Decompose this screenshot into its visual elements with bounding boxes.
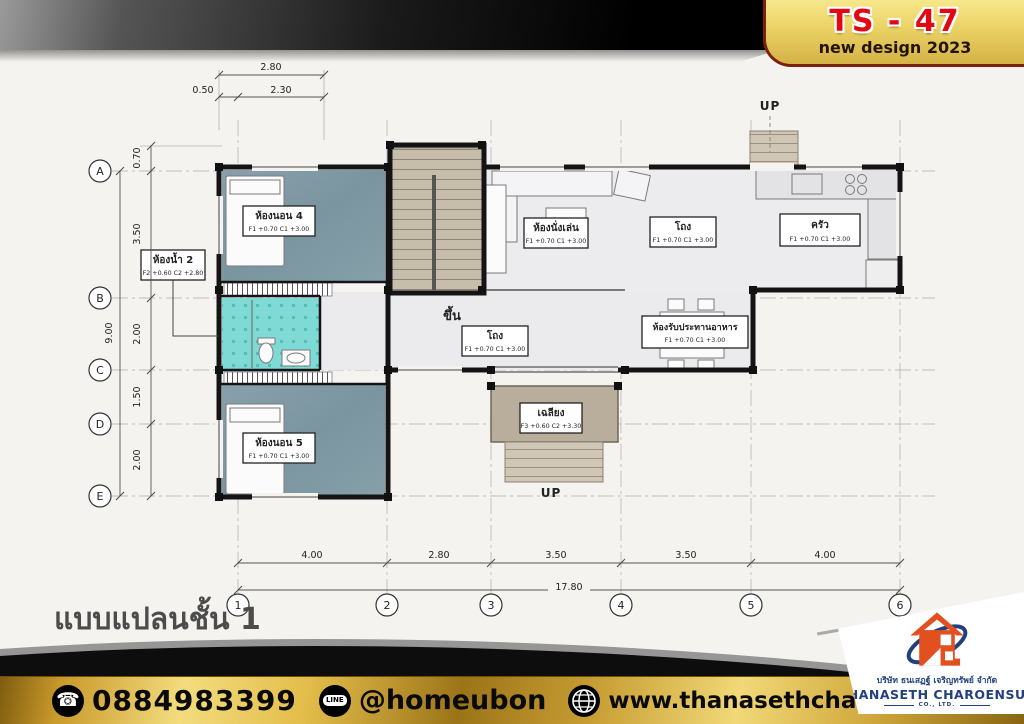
svg-text:F1 +0.70 C1 +3.00: F1 +0.70 C1 +3.00 xyxy=(653,237,714,244)
room-label-kitchen: ครัว F1 +0.70 C1 +3.00 xyxy=(780,214,860,246)
svg-text:ครัว: ครัว xyxy=(811,219,829,231)
dim-left-200b: 2.00 xyxy=(132,449,143,470)
svg-text:F2 +0.60 C2 +2.80: F2 +0.60 C2 +2.80 xyxy=(143,270,204,277)
svg-text:ห้องน้ำ 2: ห้องน้ำ 2 xyxy=(153,252,193,266)
room-label-hall-center: โถง F1 +0.70 C1 +3.00 xyxy=(462,326,528,356)
phone-contact: ☎ 0884983399 xyxy=(52,684,297,717)
svg-text:F3 +0.60 C2 +3.30: F3 +0.60 C2 +3.30 xyxy=(521,423,582,430)
company-name-thai: บริษัท ธนเสฏฐ์ เจริญทรัพย์ จำกัด xyxy=(877,673,997,687)
phone-icon: ☎ xyxy=(52,685,84,717)
top-banner-shadow xyxy=(0,50,778,62)
svg-text:F1 +0.70 C1 +3.00: F1 +0.70 C1 +3.00 xyxy=(465,346,526,353)
svg-text:ห้องนอน 5: ห้องนอน 5 xyxy=(255,437,303,449)
svg-text:ห้องนั่งเล่น: ห้องนั่งเล่น xyxy=(533,220,579,234)
up-label-top: UP xyxy=(760,99,781,113)
room-label-bath2: ห้องน้ำ 2 F2 +0.60 C2 +2.80 xyxy=(141,250,219,336)
svg-text:F1 +0.70 C1 +3.00: F1 +0.70 C1 +3.00 xyxy=(249,226,310,233)
dim-bottom-total: 17.80 xyxy=(555,582,582,593)
room-label-bedroom4: ห้องนอน 4 F1 +0.70 C1 +3.00 xyxy=(243,206,315,236)
grid-row-d: D xyxy=(96,418,104,431)
room-label-bedroom5: ห้องนอน 5 F1 +0.70 C1 +3.00 xyxy=(243,433,315,463)
dim-left-total: 9.00 xyxy=(104,322,115,343)
svg-text:F1 +0.70 C1 +3.00: F1 +0.70 C1 +3.00 xyxy=(790,236,851,243)
svg-text:โถง: โถง xyxy=(674,220,691,233)
line-contact: LINE @homeubon xyxy=(319,685,547,717)
dim-left-350: 3.50 xyxy=(132,223,143,244)
company-logo-house-icon xyxy=(901,607,973,671)
floor-plan-drawing: ห้องนอน 4 F1 +0.70 C1 +3.00 ห้องน้ำ 2 F2… xyxy=(0,0,1024,665)
room-label-terrace: เฉลียง F3 +0.60 C2 +3.30 xyxy=(520,403,582,433)
globe-icon xyxy=(568,685,600,717)
grid-col-6: 6 xyxy=(897,599,904,612)
svg-text:F1 +0.70 C1 +3.00: F1 +0.70 C1 +3.00 xyxy=(526,238,587,245)
room-label-living: ห้องนั่งเล่น F1 +0.70 C1 +3.00 xyxy=(524,218,588,248)
dim-bottom-350a: 3.50 xyxy=(545,550,566,561)
grid-col-4: 4 xyxy=(618,599,625,612)
model-badge: TS - 47 new design 2023 xyxy=(763,0,1024,67)
dim-bottom-350b: 3.50 xyxy=(675,550,696,561)
svg-text:โถง: โถง xyxy=(486,329,503,342)
dim-bottom-280: 2.80 xyxy=(428,550,449,561)
dim-top-050: 0.50 xyxy=(192,85,213,96)
up-label-bottom: UP xyxy=(541,486,562,500)
company-name-english: THANASETH CHAROENSUP xyxy=(839,687,1024,702)
grid-row-e: E xyxy=(97,490,104,503)
dim-left-070: 0.70 xyxy=(132,147,143,168)
model-number: TS - 47 xyxy=(829,7,960,37)
dim-top-280: 2.80 xyxy=(260,62,281,73)
grid-row-b: B xyxy=(96,292,104,305)
grid-row-c: C xyxy=(96,364,104,377)
svg-text:ห้องรับประทานอาหาร: ห้องรับประทานอาหาร xyxy=(652,322,737,333)
badge-subtitle: new design 2023 xyxy=(819,38,972,57)
poster-page: ห้องนอน 4 F1 +0.70 C1 +3.00 ห้องน้ำ 2 F2… xyxy=(0,0,1024,724)
line-id: @homeubon xyxy=(359,685,547,716)
svg-text:F1 +0.70 C1 +3.00: F1 +0.70 C1 +3.00 xyxy=(665,337,726,344)
room-label-dining: ห้องรับประทานอาหาร F1 +0.70 C1 +3.00 xyxy=(642,316,748,348)
dim-left-150: 1.50 xyxy=(132,386,143,407)
line-icon: LINE xyxy=(319,685,351,717)
grid-col-3: 3 xyxy=(488,599,495,612)
dim-bottom-400a: 4.00 xyxy=(301,550,322,561)
svg-text:ห้องนอน 4: ห้องนอน 4 xyxy=(255,210,303,222)
grid-col-2: 2 xyxy=(384,599,391,612)
svg-text:เฉลียง: เฉลียง xyxy=(537,407,564,419)
phone-number: 0884983399 xyxy=(92,684,297,717)
company-suffix: CO., LTD. xyxy=(884,702,991,708)
grid-col-5: 5 xyxy=(748,599,755,612)
dim-left-200a: 2.00 xyxy=(132,323,143,344)
room-label-hall-upper: โถง F1 +0.70 C1 +3.00 xyxy=(650,217,716,247)
dim-top-230: 2.30 xyxy=(270,85,291,96)
svg-text:F1 +0.70 C1 +3.00: F1 +0.70 C1 +3.00 xyxy=(249,453,310,460)
grid-row-a: A xyxy=(96,165,104,178)
dim-bottom-400b: 4.00 xyxy=(814,550,835,561)
